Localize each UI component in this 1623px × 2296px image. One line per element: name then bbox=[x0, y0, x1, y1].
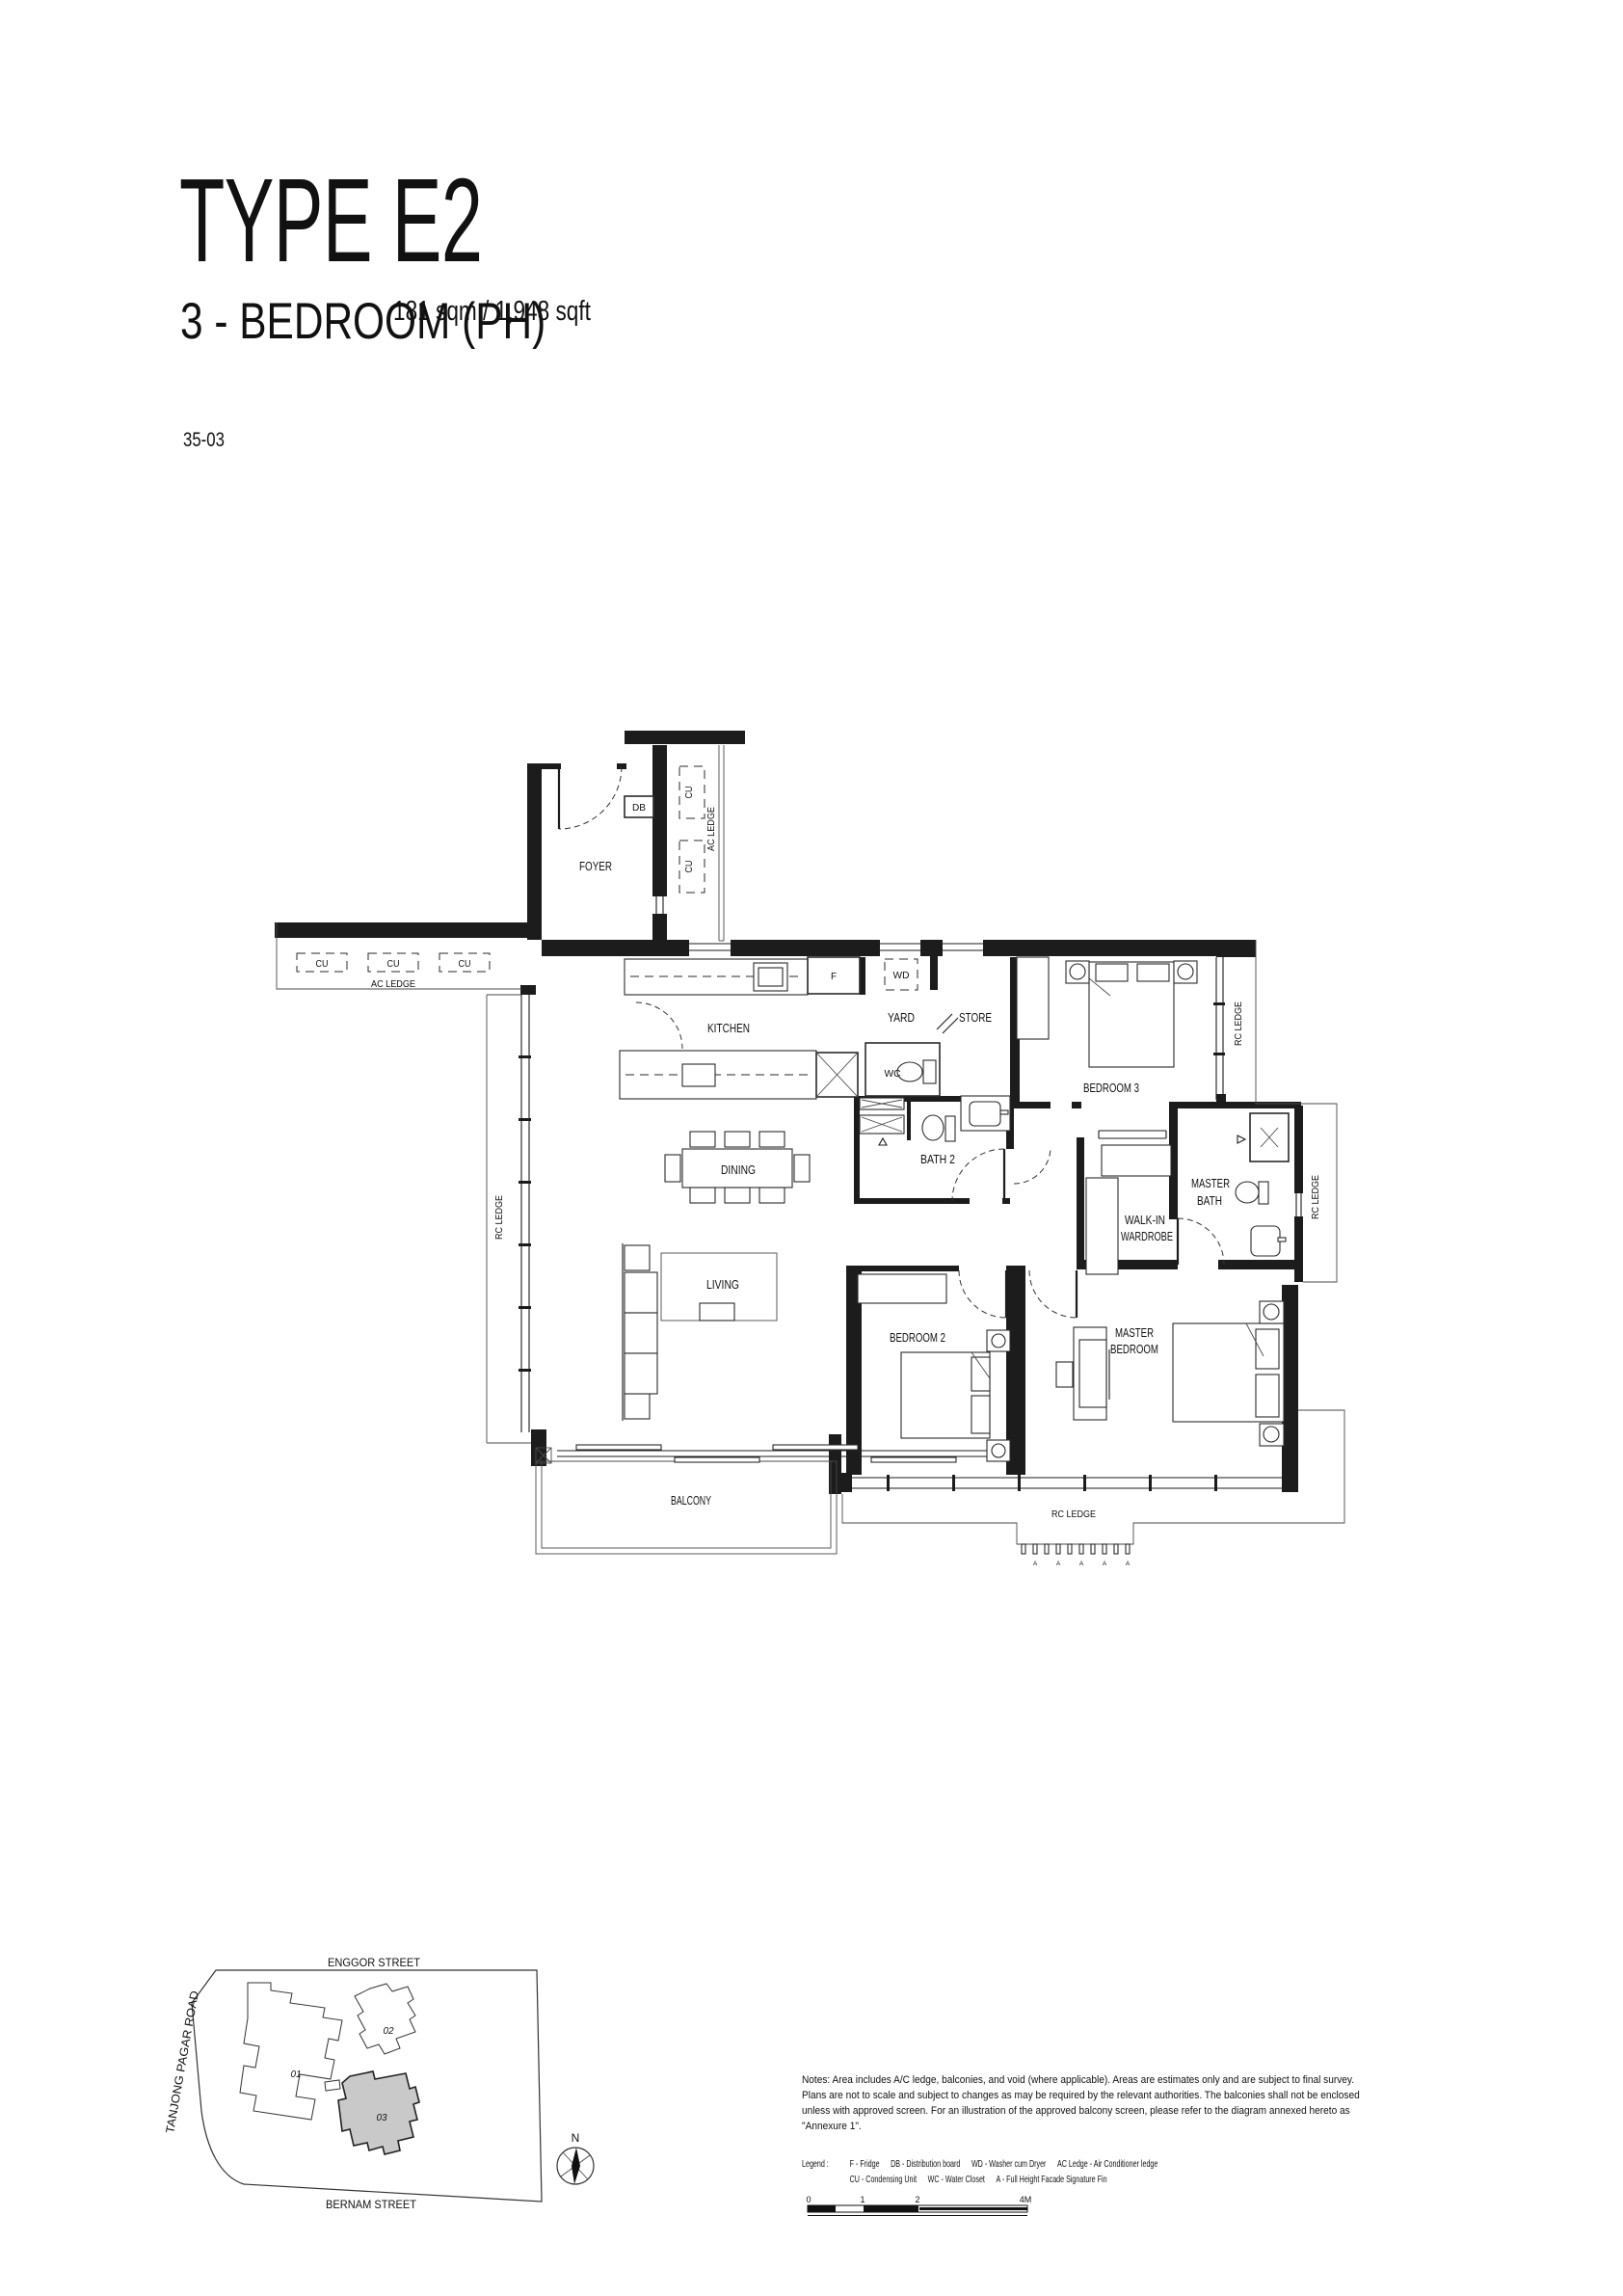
block-label-01: 01 bbox=[290, 2069, 301, 2080]
label-cu-4: CU bbox=[684, 787, 695, 799]
label-masterbath-2: BATH bbox=[1197, 1194, 1222, 1208]
label-dining: DINING bbox=[721, 1163, 756, 1177]
label-bedroom2: BEDROOM 2 bbox=[890, 1331, 945, 1345]
block-label-02: 02 bbox=[383, 2026, 394, 2037]
scale-tick-4m: 4M bbox=[1020, 2195, 1032, 2204]
street-bernam: BERNAM STREET bbox=[326, 2198, 417, 2211]
bedroom3-furniture bbox=[1017, 957, 1197, 1067]
label-fin-2: A bbox=[1056, 1561, 1061, 1567]
notes-block: Notes: Area includes A/C ledge, balconie… bbox=[802, 2072, 1494, 2134]
legend-item: WC - Water Closet bbox=[928, 2174, 985, 2185]
label-master-1: MASTER bbox=[1115, 1326, 1154, 1340]
label-store: STORE bbox=[959, 1011, 992, 1025]
label-bath2: BATH 2 bbox=[920, 1153, 955, 1166]
bedroom2-furniture bbox=[858, 1274, 1010, 1461]
site-block-01 bbox=[240, 1983, 342, 2120]
label-db: DB bbox=[632, 803, 646, 814]
master-bath-fixtures bbox=[1236, 1113, 1289, 1256]
unit-area: 181 sqm / 1,948 sqft bbox=[393, 298, 591, 326]
legend-item: CU - Condensing Unit bbox=[850, 2174, 917, 2185]
label-fin-5: A bbox=[1126, 1561, 1131, 1567]
legend-row-1: F - FridgeDB - Distribution boardWD - Wa… bbox=[802, 2156, 1392, 2172]
scale-tick-1: 1 bbox=[860, 2195, 865, 2204]
legend-item: F - Fridge bbox=[850, 2158, 880, 2170]
label-rc-ledge-left: RC LEDGE bbox=[494, 1195, 505, 1240]
street-enggor: ENGGOR STREET bbox=[328, 1956, 421, 1969]
label-master-2: BEDROOM bbox=[1110, 1343, 1158, 1356]
label-ac-ledge-top: AC LEDGE bbox=[706, 807, 717, 851]
scale-tick-0: 0 bbox=[806, 2195, 811, 2204]
walkin-wardrobe bbox=[1086, 1131, 1171, 1274]
label-ac-ledge-left: AC LEDGE bbox=[371, 979, 415, 990]
street-tanjong-pagar: TANJONG PAGAR ROAD bbox=[163, 1989, 201, 2135]
label-wc: WC bbox=[885, 1069, 901, 1080]
label-rc-ledge-bottom: RC LEDGE bbox=[1051, 1509, 1096, 1520]
label-balcony: BALCONY bbox=[671, 1494, 711, 1508]
notes-line: Notes: Area includes A/C ledge, balconie… bbox=[802, 2072, 1494, 2088]
label-fin-1: A bbox=[1033, 1561, 1038, 1567]
site-block-connector bbox=[325, 2080, 340, 2091]
legend-item: AC Ledge - Air Conditioner ledge bbox=[1057, 2158, 1157, 2170]
floorplan-page: TYPE E2 3 - BEDROOM (PH) 181 sqm / 1,948… bbox=[0, 0, 1623, 2296]
notes-line: Plans are not to scale and subject to ch… bbox=[802, 2088, 1494, 2103]
north-compass-icon: N bbox=[557, 2131, 594, 2184]
notes-line: unless with approved screen. For an illu… bbox=[802, 2103, 1494, 2119]
scale-bar: 0 1 2 4M bbox=[806, 2194, 1037, 2223]
north-label: N bbox=[572, 2131, 580, 2145]
label-cu-2: CU bbox=[387, 959, 400, 970]
bath-fixtures bbox=[860, 1043, 1010, 1145]
site-block-02 bbox=[355, 1984, 415, 2054]
label-walkin-1: WALK-IN bbox=[1125, 1214, 1165, 1227]
living-furniture bbox=[623, 1243, 777, 1421]
label-cu-1: CU bbox=[316, 959, 329, 970]
label-fin-3: A bbox=[1079, 1561, 1084, 1567]
label-kitchen: KITCHEN bbox=[707, 1022, 750, 1035]
label-rc-ledge-right1: RC LEDGE bbox=[1234, 1001, 1244, 1046]
label-wd: WD bbox=[893, 971, 910, 981]
floor-plan: FOYER KITCHEN YARD STORE BEDROOM 3 DININ… bbox=[251, 694, 1369, 1581]
label-yard: YARD bbox=[888, 1011, 915, 1025]
unit-number: 35-03 bbox=[183, 430, 225, 450]
legend-item: WD - Washer cum Dryer bbox=[971, 2158, 1046, 2170]
label-living: LIVING bbox=[706, 1278, 739, 1292]
legend-label: Legend : bbox=[802, 2156, 829, 2172]
label-rc-ledge-right2: RC LEDGE bbox=[1311, 1175, 1321, 1219]
label-walkin-2: WARDROBE bbox=[1121, 1230, 1173, 1243]
page-title: TYPE E2 bbox=[179, 162, 482, 280]
legend-item: DB - Distribution board bbox=[891, 2158, 960, 2170]
legend-item: A - Full Height Facade Signature Fin bbox=[996, 2174, 1106, 2185]
label-fin-4: A bbox=[1103, 1561, 1107, 1567]
walls-layer bbox=[275, 731, 1303, 1494]
block-label-03: 03 bbox=[376, 2113, 387, 2123]
label-fridge: F bbox=[831, 972, 837, 982]
master-bedroom-furniture bbox=[1056, 1301, 1284, 1446]
label-cu-3: CU bbox=[459, 959, 471, 970]
notes-line: "Annexure 1". bbox=[802, 2119, 1494, 2134]
legend-block: Legend : F - FridgeDB - Distribution boa… bbox=[802, 2156, 1392, 2187]
label-foyer: FOYER bbox=[579, 860, 612, 873]
facade-fins bbox=[1022, 1544, 1130, 1554]
label-cu-5: CU bbox=[684, 861, 695, 873]
label-masterbath-1: MASTER bbox=[1191, 1177, 1230, 1190]
legend-row-2: CU - Condensing UnitWC - Water ClosetA -… bbox=[802, 2172, 1392, 2187]
label-bedroom3: BEDROOM 3 bbox=[1083, 1081, 1139, 1095]
ledge-outlines bbox=[277, 745, 1344, 1554]
site-plan: ENGGOR STREET TANJONG PAGAR ROAD BERNAM … bbox=[87, 1918, 704, 2246]
scale-tick-2: 2 bbox=[915, 2195, 919, 2204]
